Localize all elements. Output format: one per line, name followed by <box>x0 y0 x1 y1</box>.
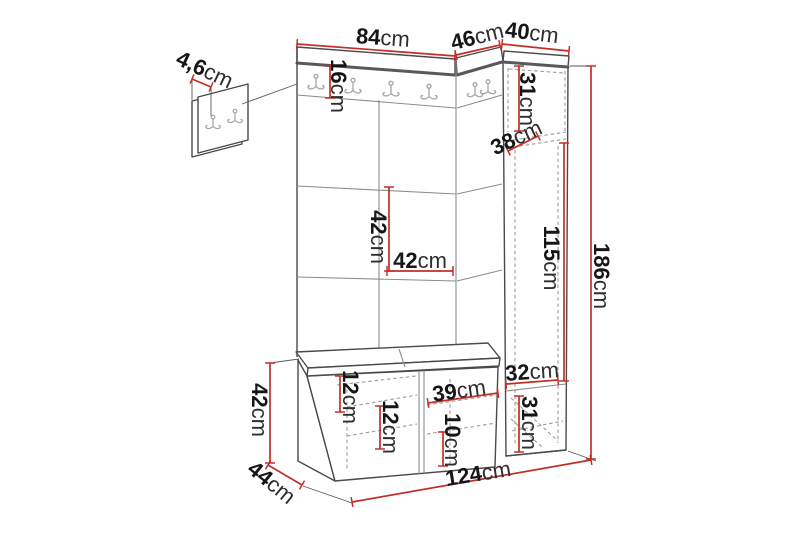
dim-label-40cm: 40cm <box>504 16 560 47</box>
coat-hook-icon <box>467 83 482 97</box>
dim-label-42cm-vertical: 42cm <box>367 210 392 264</box>
dim-label-12cm-b: 12cm <box>379 400 404 454</box>
dim-label-115cm: 115cm <box>540 226 565 291</box>
dim-label-84cm: 84cm <box>355 23 410 52</box>
dim-label-32cm: 32cm <box>504 357 559 386</box>
dim-label-4-6cm: 4,6cm <box>173 45 238 93</box>
coat-hook-icon <box>480 80 495 94</box>
coat-hook-icon <box>421 84 437 99</box>
dim-label-31cm-bottom: 31cm <box>518 396 543 450</box>
furniture-dimension-diagram: 84cm 46cm 40cm 4,6cm 16cm 31cm 38cm 42cm… <box>0 0 800 533</box>
dim-label-42cm-bench: 42cm <box>248 383 273 437</box>
wall-hook-panel <box>192 84 297 157</box>
coat-hook-icon <box>383 81 399 96</box>
dim-label-12cm-a: 12cm <box>339 370 364 424</box>
coat-hook-icon <box>308 74 324 89</box>
dim-line-40 <box>502 44 569 51</box>
dim-label-16cm: 16cm <box>327 59 352 113</box>
diagram-canvas: 84cm 46cm 40cm 4,6cm 16cm 31cm 38cm 42cm… <box>0 0 800 533</box>
dim-label-10cm: 10cm <box>441 413 466 467</box>
dim-label-42cm-horizontal: 42cm <box>393 248 447 273</box>
dim-label-186cm: 186cm <box>590 243 615 309</box>
detail-pointer-line <box>242 84 297 104</box>
dim-label-44cm: 44cm <box>243 455 301 508</box>
